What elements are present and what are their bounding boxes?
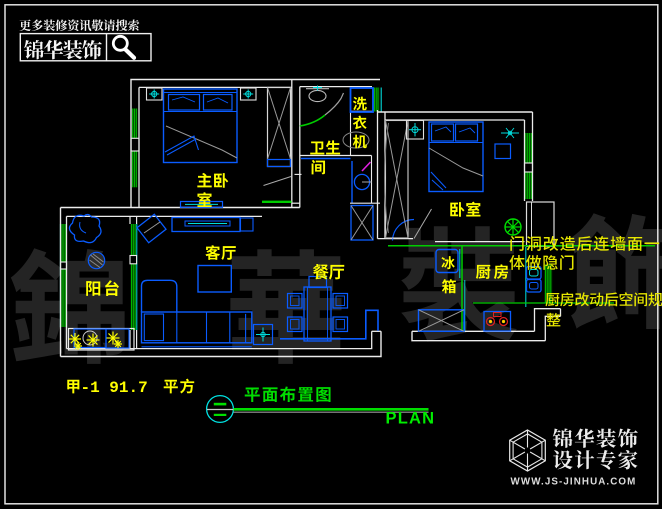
svg-text:-1 91.7: -1 91.7 xyxy=(81,379,148,397)
svg-text:WWW.JS-JINHUA.COM: WWW.JS-JINHUA.COM xyxy=(511,476,637,487)
svg-text:PLAN: PLAN xyxy=(386,410,436,428)
